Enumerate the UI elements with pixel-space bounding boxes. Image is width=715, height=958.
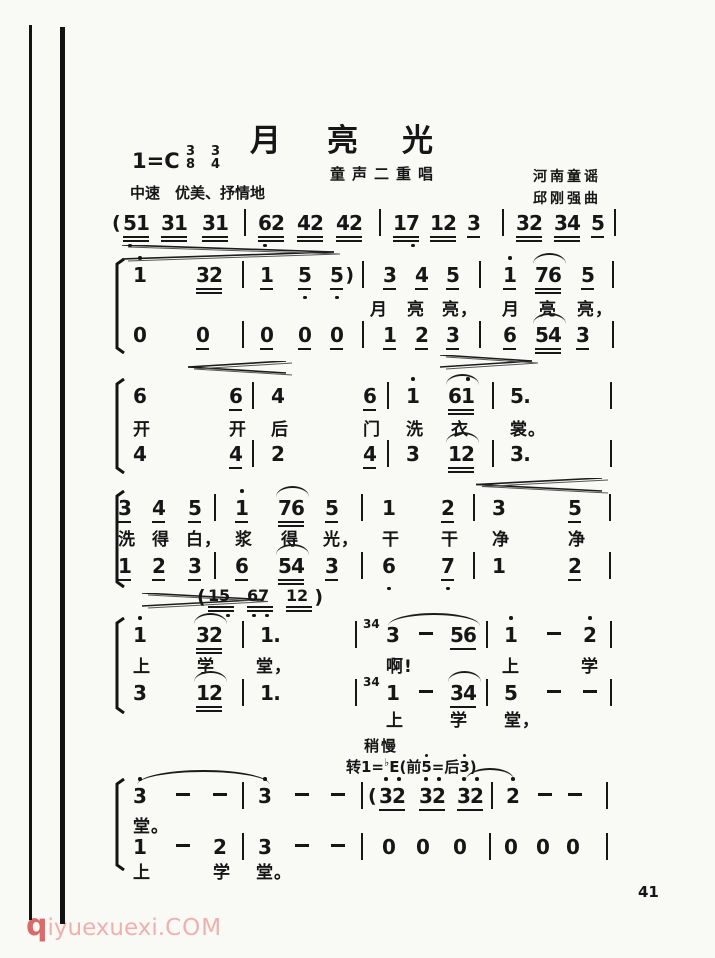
beam-line (286, 610, 312, 612)
note: 6 (229, 385, 242, 407)
barline (379, 209, 381, 236)
beam-line (576, 348, 589, 350)
beam-line (196, 288, 222, 290)
lyrics-row: 上学堂。 (0, 858, 715, 894)
barline (252, 440, 254, 467)
dash-note (568, 793, 582, 796)
ts-denominator: 8 (186, 157, 195, 172)
subtitle: 童声二重唱 (330, 163, 440, 184)
note: 31 (161, 212, 187, 234)
dash-note (583, 690, 597, 693)
note: 5 (298, 264, 311, 286)
octave-dot-high (138, 616, 142, 620)
watermark-dot: . (158, 915, 165, 941)
beam-line (379, 809, 405, 811)
note: 3 (325, 555, 338, 577)
beam-line (123, 236, 149, 238)
beam-line (448, 467, 474, 469)
dash-note (331, 793, 345, 796)
time-signature: 3 4 (207, 145, 224, 171)
lyrics-row: 上学堂， (0, 706, 715, 742)
note: 5 (446, 264, 459, 286)
barline (609, 552, 611, 579)
inline-time-signature: 34 (363, 618, 379, 630)
page-title-char: 月 (250, 115, 281, 160)
barline (242, 621, 244, 648)
lyric-syllable: 堂。 (256, 858, 292, 883)
octave-dot-high (384, 777, 388, 781)
page-title-char: 光 (402, 115, 433, 160)
octave-dot-high (138, 777, 142, 781)
beam-line (188, 579, 201, 581)
barline (479, 261, 481, 288)
beam-line (298, 348, 311, 350)
note: 51( (123, 212, 149, 234)
voice-row: 000001236543 (0, 322, 715, 358)
note: 1 (118, 555, 131, 577)
note: 0 (453, 836, 466, 858)
note: 1. (260, 624, 281, 646)
note: 0 (133, 324, 146, 346)
note: 32 (196, 624, 222, 646)
note: 32 (196, 264, 222, 286)
note: 1 (133, 836, 146, 858)
note: 3 (188, 555, 201, 577)
note: 17 (393, 212, 419, 234)
lyric-syllable: 上 (386, 706, 404, 731)
barline (473, 552, 475, 579)
beam-line (446, 348, 459, 350)
note: 12 (448, 443, 474, 465)
note: 4 (229, 443, 242, 465)
dash-note (295, 793, 309, 796)
crescendo-hairpin (188, 361, 296, 379)
note: 2 (506, 785, 519, 807)
barline (606, 833, 608, 860)
beam-line (298, 288, 311, 290)
beam-line (457, 809, 483, 811)
dash-note (547, 690, 561, 693)
beam-line (229, 409, 242, 411)
beam-line (383, 348, 396, 350)
barline (252, 382, 254, 409)
barline (479, 321, 481, 348)
beam-line (325, 521, 338, 523)
note: 15( (208, 586, 234, 604)
lyric-syllable: 开 (133, 415, 151, 440)
beam-line (554, 236, 580, 238)
barline (610, 440, 612, 467)
beam-line (330, 288, 343, 290)
lyric-syllable: 上 (133, 858, 151, 883)
modulation-key: E (389, 758, 399, 776)
time-signature: 3 8 (182, 145, 199, 171)
octave-dot-low (128, 244, 132, 248)
note: 6 (503, 324, 516, 346)
dash-note (331, 844, 345, 847)
note: 5 (568, 497, 581, 519)
note: 12 (430, 212, 456, 234)
barline (361, 552, 363, 579)
beam-line (393, 236, 419, 238)
beam-line (235, 579, 248, 581)
note: 12 (196, 682, 222, 704)
note: 2 (152, 555, 165, 577)
beam-line (260, 288, 273, 290)
note: 3 (386, 624, 399, 646)
lyric-syllable: 堂， (504, 706, 540, 731)
beam-line (297, 240, 323, 242)
note: 62 (258, 212, 284, 234)
scanned-score-page: 月 亮 光 1=C 3 8 3 4 童声二重唱 河南童谣 邱刚强曲 中速 优美、… (0, 0, 715, 958)
beam-line (336, 240, 362, 242)
note: 4 (363, 443, 376, 465)
beam-line (188, 521, 201, 523)
barline (387, 440, 389, 467)
barline (355, 621, 357, 648)
note: 6 (133, 385, 146, 407)
beam-line (503, 288, 516, 290)
beam-line (118, 521, 131, 523)
note: 1 (260, 264, 273, 286)
beam-line (118, 579, 131, 581)
note: 5 (188, 497, 201, 519)
beam-line (591, 236, 604, 238)
note: 3 (467, 212, 480, 234)
beam-line (336, 236, 362, 238)
beam-line (393, 240, 419, 242)
note: 4 (415, 264, 428, 286)
lyric-syllable: 后 (271, 415, 289, 440)
barline (242, 679, 244, 706)
modulation-text: (前 (399, 758, 421, 776)
octave-dot-high (424, 777, 428, 781)
lyric-syllable: 干 (441, 525, 459, 550)
note: 2 (271, 443, 284, 465)
note: 4 (133, 443, 146, 465)
beam-line (419, 809, 445, 811)
beam-line (123, 240, 149, 242)
note: 0 (566, 836, 579, 858)
tempo-marking: 中速 优美、抒情地 (130, 182, 265, 203)
barline (214, 552, 216, 579)
note: 5 (325, 497, 338, 519)
lyric-syllable: 上 (502, 652, 520, 677)
note: 7 (441, 555, 454, 577)
barline (492, 440, 494, 467)
beam-line (467, 236, 480, 238)
note: 42 (297, 212, 323, 234)
open-paren: ( (368, 785, 377, 807)
barline (473, 494, 475, 521)
lyric-syllable: 亮， (577, 295, 613, 320)
barline (612, 321, 614, 348)
lyric-syllable: 月 (370, 295, 388, 320)
beam-line (568, 521, 581, 523)
beam-line (535, 292, 561, 294)
note: 5 (504, 682, 517, 704)
beam-line (448, 409, 474, 411)
dash-note (176, 793, 190, 796)
octave-dot-high (508, 256, 512, 260)
beam-line (535, 348, 561, 350)
beam-line (415, 288, 428, 290)
octave-dot-high (240, 489, 244, 493)
close-paren: ) (345, 264, 354, 286)
note: 32 (516, 212, 542, 234)
octave-dot-high (138, 256, 142, 260)
lyric-syllable: 白， (186, 525, 222, 550)
beam-line (446, 288, 459, 290)
note: 56 (450, 624, 476, 646)
binding-edge-rule (29, 25, 32, 920)
note: 2 (415, 324, 428, 346)
barline (361, 494, 363, 521)
octave-dot-high (462, 777, 466, 781)
note: 3. (510, 443, 531, 465)
beam-line (441, 579, 454, 581)
note: 12) (286, 586, 312, 604)
dash-note (547, 632, 561, 635)
dash-note (419, 632, 433, 635)
lyric-syllable: 学 (213, 858, 231, 883)
note: 61 (448, 385, 474, 407)
barline (502, 209, 504, 236)
beam-line (325, 579, 338, 581)
beam-line (235, 521, 248, 523)
beam-line (430, 240, 456, 242)
octave-dot-low (226, 614, 230, 618)
dash-note (295, 844, 309, 847)
dash-note (419, 690, 433, 693)
watermark: qiyuexuexi.COM (26, 908, 222, 943)
note: 4 (152, 497, 165, 519)
close-paren: ) (314, 586, 323, 608)
inline-time-signature: 34 (363, 676, 379, 688)
note: 76 (535, 264, 561, 286)
note: 76 (278, 497, 304, 519)
dash-note (176, 844, 190, 847)
lyric-syllable: 裳。 (510, 415, 546, 440)
note: 3 (258, 836, 271, 858)
note: 1 (235, 497, 248, 519)
tie-arc (276, 486, 309, 497)
beam-line (330, 348, 343, 350)
lyric-syllable: 开 (229, 415, 247, 440)
barline (244, 209, 246, 236)
barline (242, 782, 244, 809)
octave-dot-high (475, 777, 479, 781)
octave-dot-low (263, 244, 267, 248)
barline (242, 261, 244, 288)
note: 1 (503, 264, 516, 286)
note: 2 (568, 555, 581, 577)
beam-line (450, 648, 476, 650)
octave-dot-high (511, 777, 515, 781)
note: 0 (196, 324, 209, 346)
barline (361, 833, 363, 860)
note: 6 (363, 385, 376, 407)
beam-line (535, 288, 561, 290)
note: 1 (133, 264, 146, 286)
octave-dot-high (263, 777, 267, 781)
note: 32 (419, 785, 445, 807)
note: 0 (504, 836, 517, 858)
note: 0 (382, 836, 395, 858)
octave-dot-low (252, 614, 256, 618)
beam-line (286, 606, 312, 608)
voice-row: 66461615. (0, 383, 715, 419)
dash-note (213, 793, 227, 796)
modulation-label: 转1=♭E(前5=后3) (346, 756, 477, 777)
note: 3 (406, 443, 419, 465)
note: 5. (510, 385, 531, 407)
beam-line (516, 236, 542, 238)
lyric-syllable: 上 (133, 652, 151, 677)
note: 3 (133, 785, 146, 807)
note: 2 (441, 497, 454, 519)
note: 3 (383, 264, 396, 286)
beam-line (258, 236, 284, 238)
barline (491, 782, 493, 809)
barline (214, 494, 216, 521)
beam-line (161, 240, 187, 242)
modulation-text: =后 (432, 758, 460, 776)
note: 0 (330, 324, 343, 346)
tie-arc (446, 374, 479, 385)
note: 6 (235, 555, 248, 577)
beam-line (503, 348, 516, 350)
note: 34 (450, 682, 476, 704)
lyric-syllable: 净 (568, 525, 586, 550)
beam-line (278, 521, 304, 523)
barline (361, 782, 363, 809)
lyric-syllable: 洗 (406, 415, 424, 440)
note: 54 (278, 555, 304, 577)
note: 0 (536, 836, 549, 858)
beam-line (247, 606, 273, 608)
voice-row: 132155)3451765 (0, 262, 715, 298)
beam-line (202, 236, 228, 238)
watermark-domain: COM (165, 915, 222, 941)
note: 3 (446, 324, 459, 346)
octave-dot-high (411, 377, 415, 381)
note: 1 (386, 682, 399, 704)
lyric-syllable: 门 (363, 415, 381, 440)
dash-note (538, 793, 552, 796)
beam-line (516, 240, 542, 242)
beam-line (152, 579, 165, 581)
note: 2 (583, 624, 596, 646)
lyric-syllable: 光， (323, 525, 359, 550)
beam-line (568, 579, 581, 581)
voice-row: 15(6712) (0, 584, 715, 620)
modulation-note: 5 (421, 758, 431, 776)
note: 5) (330, 264, 343, 286)
beam-line (581, 288, 594, 290)
note: 0 (298, 324, 311, 346)
note: 1 (406, 385, 419, 407)
note: 5 (581, 264, 594, 286)
lyric-syllable: 月 (502, 295, 520, 320)
beam-line (363, 467, 376, 469)
note: 4 (271, 385, 284, 407)
barline (609, 494, 611, 521)
beam-line (247, 610, 273, 612)
barline (242, 321, 244, 348)
beam-line (258, 240, 284, 242)
lyric-syllable: 得 (152, 525, 170, 550)
note: 3 (118, 497, 131, 519)
note: 1. (260, 682, 281, 704)
note: 1 (382, 497, 395, 519)
note: 3 (133, 682, 146, 704)
octave-dot-high (588, 616, 592, 620)
lyric-syllable: 堂， (256, 652, 292, 677)
note: 1 (383, 324, 396, 346)
modulation-text: 转1= (346, 758, 384, 776)
beam-line (202, 240, 228, 242)
lyric-syllable: 学 (450, 706, 468, 731)
note: 67 (247, 586, 273, 604)
barline (614, 209, 616, 236)
voice-row: 51(31316242421712332345 (0, 210, 715, 246)
note: 3 (258, 785, 271, 807)
octave-dot-low (411, 244, 415, 248)
octave-dot-low (265, 614, 269, 618)
octave-dot-high (397, 777, 401, 781)
beam-line (196, 292, 222, 294)
key-signature: 1=C (132, 149, 180, 173)
barline (362, 321, 364, 348)
barline (489, 833, 491, 860)
octave-dot-high (509, 616, 513, 620)
lyric-syllable: 净 (492, 525, 510, 550)
lyric-syllable: 干 (382, 525, 400, 550)
beam-line (363, 409, 376, 411)
voice-row: 44243123. (0, 441, 715, 477)
barline (362, 261, 364, 288)
barline (486, 621, 488, 648)
beam-line (229, 467, 242, 469)
lyric-syllable: 浆 (235, 525, 253, 550)
binding-edge-rule (60, 27, 65, 924)
beam-line (196, 348, 209, 350)
beam-line (161, 236, 187, 238)
beam-line (297, 236, 323, 238)
beam-line (260, 348, 273, 350)
ts-denominator: 4 (211, 157, 220, 172)
lyric-syllable: 洗 (118, 525, 136, 550)
barline (486, 679, 488, 706)
barline (610, 382, 612, 409)
beam-line (430, 236, 456, 238)
credit-music: 邱刚强曲 (533, 188, 601, 208)
note: 0 (416, 836, 429, 858)
barline (492, 382, 494, 409)
page-number: 41 (638, 883, 659, 901)
note: 31 (202, 212, 228, 234)
note: 42 (336, 212, 362, 234)
note: 5 (591, 212, 604, 234)
note: 1 (492, 555, 505, 577)
beam-line (383, 288, 396, 290)
tie-arc (533, 253, 566, 264)
beam-line (554, 240, 580, 242)
note: 32( (379, 785, 405, 807)
barline (610, 679, 612, 706)
barline (612, 261, 614, 288)
